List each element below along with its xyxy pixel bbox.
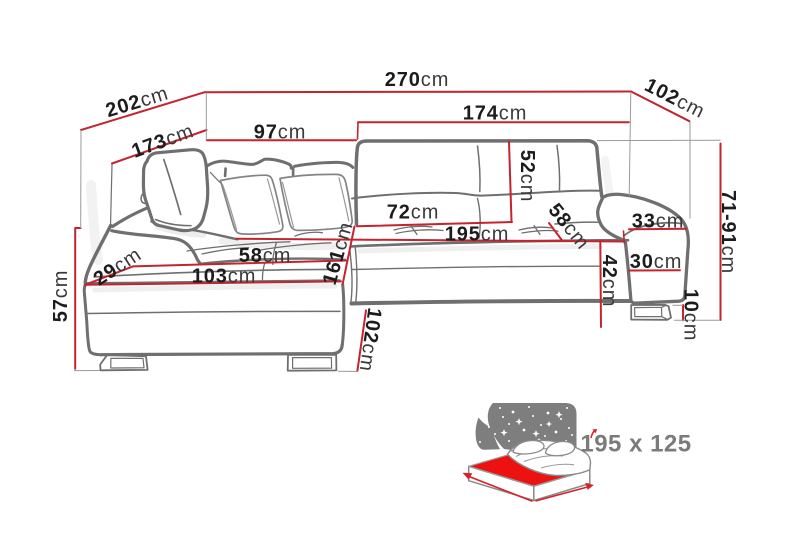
svg-text:10cm: 10cm [680, 289, 702, 342]
svg-text:58cm: 58cm [239, 245, 292, 267]
svg-text:30cm: 30cm [630, 251, 683, 273]
svg-text:97cm: 97cm [254, 122, 307, 144]
svg-text:57cm: 57cm [50, 270, 72, 323]
svg-text:33cm: 33cm [632, 211, 685, 233]
svg-text:174cm: 174cm [463, 103, 528, 125]
svg-text:103cm: 103cm [192, 266, 257, 288]
svg-text:102cm: 102cm [641, 74, 708, 123]
svg-text:195 x 125: 195 x 125 [580, 431, 691, 458]
svg-text:42cm: 42cm [598, 255, 620, 308]
svg-text:71-91cm: 71-91cm [717, 190, 739, 274]
svg-text:195cm: 195cm [445, 224, 510, 246]
svg-text:270cm: 270cm [385, 69, 450, 91]
svg-text:52cm: 52cm [516, 150, 538, 203]
svg-text:202cm: 202cm [103, 82, 171, 122]
svg-text:102cm: 102cm [355, 306, 386, 373]
svg-text:72cm: 72cm [387, 202, 440, 224]
